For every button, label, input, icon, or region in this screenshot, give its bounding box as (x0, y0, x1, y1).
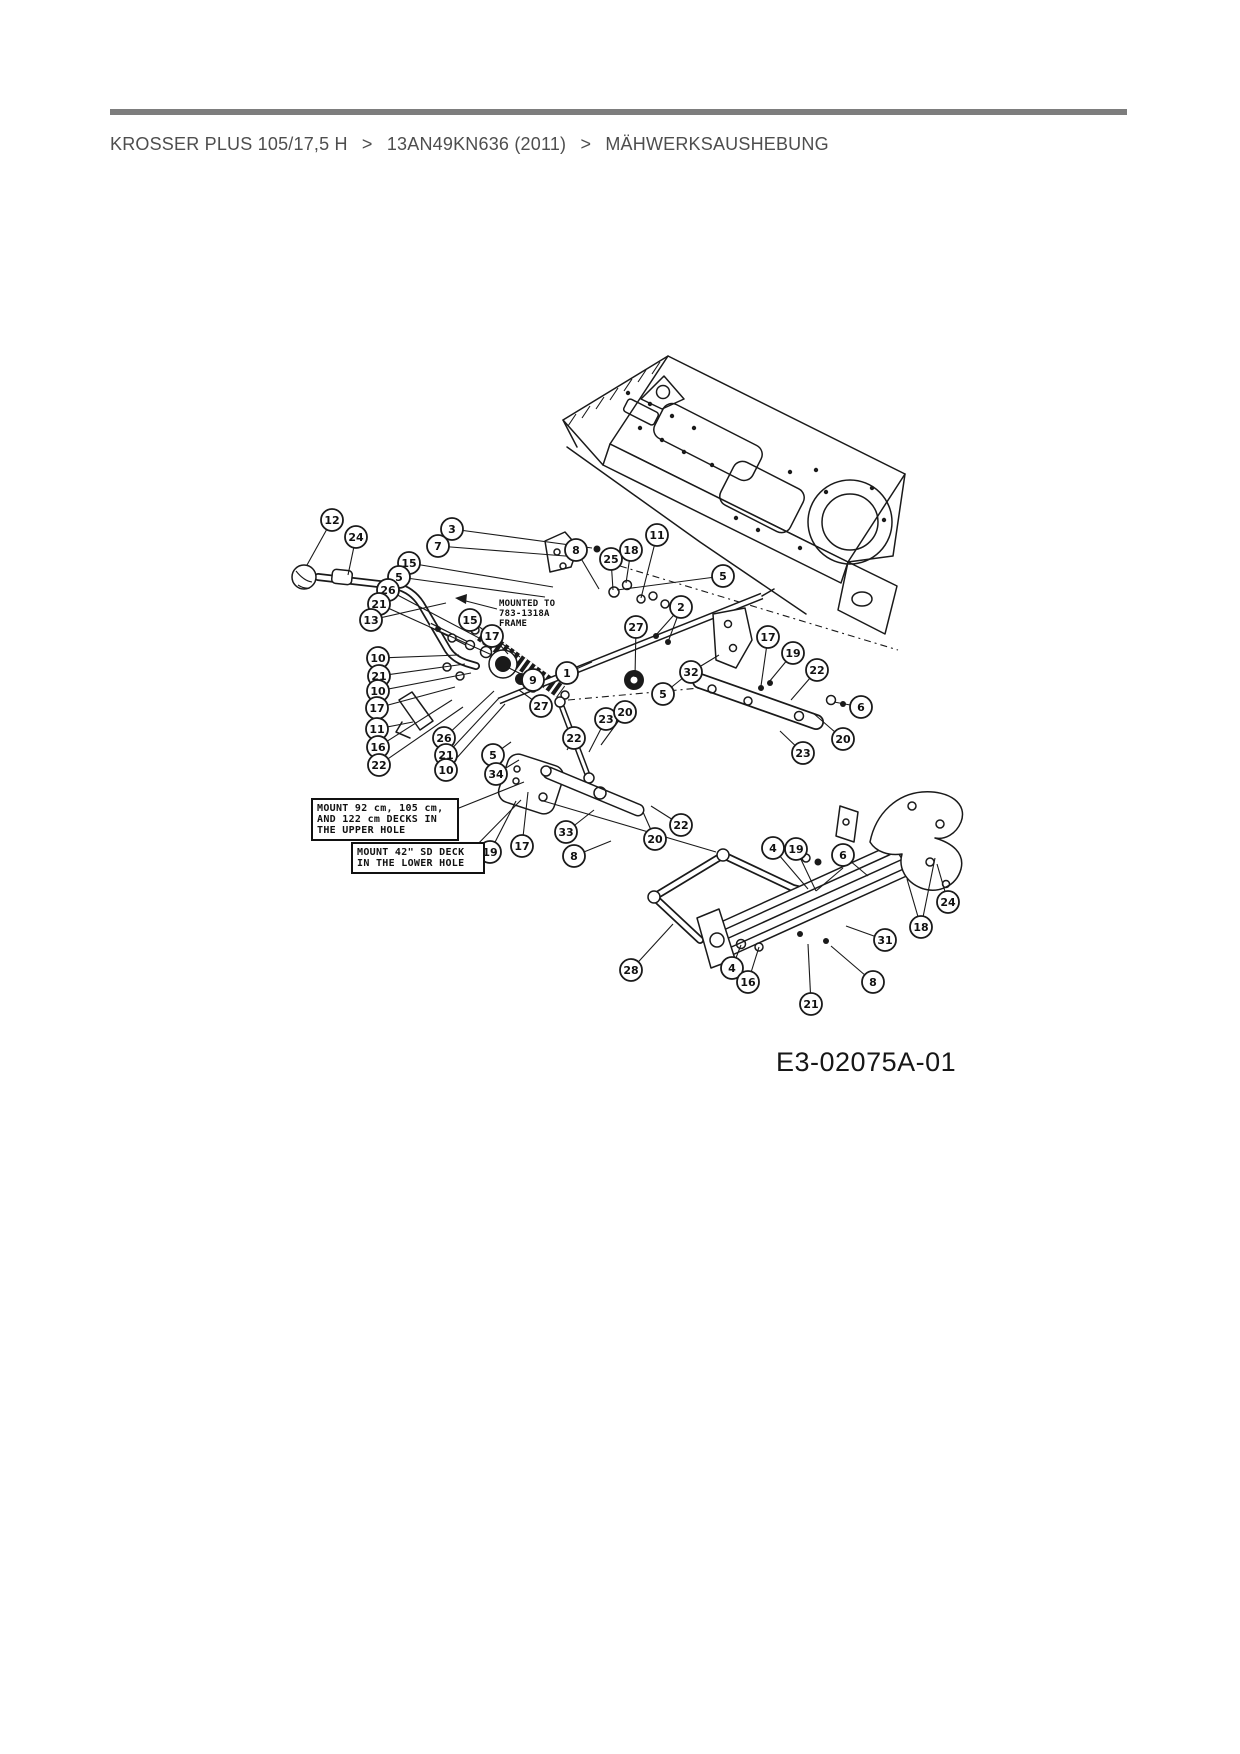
svg-text:15: 15 (462, 614, 477, 627)
svg-text:13: 13 (363, 614, 378, 627)
svg-text:1: 1 (563, 667, 571, 680)
part-balloon-23[interactable]: 23 (792, 742, 814, 764)
diagram-code-label: E3-02075A-01 (776, 1047, 956, 1078)
svg-text:23: 23 (598, 713, 613, 726)
svg-text:9: 9 (529, 674, 537, 687)
idler-pulley (624, 670, 644, 690)
part-balloon-19[interactable]: 19 (785, 838, 807, 860)
svg-text:6: 6 (839, 849, 847, 862)
svg-text:32: 32 (683, 666, 698, 679)
part-balloon-27[interactable]: 27 (530, 695, 552, 717)
part-balloon-32[interactable]: 32 (680, 661, 702, 683)
part-balloon-6[interactable]: 6 (832, 844, 854, 866)
svg-text:23: 23 (795, 747, 810, 760)
part-balloon-22[interactable]: 22 (806, 659, 828, 681)
part-balloon-11[interactable]: 11 (646, 524, 668, 546)
parts-diagram: 1224371552621131021101711162215179127262… (0, 0, 1240, 1754)
part-balloon-10[interactable]: 10 (435, 759, 457, 781)
part-balloon-24[interactable]: 24 (937, 891, 959, 913)
svg-text:2: 2 (677, 601, 685, 614)
part-balloon-19[interactable]: 19 (782, 642, 804, 664)
svg-text:17: 17 (760, 631, 775, 644)
part-balloon-34[interactable]: 34 (485, 763, 507, 785)
part-balloon-5[interactable]: 5 (712, 565, 734, 587)
part-balloon-2[interactable]: 2 (670, 596, 692, 618)
svg-text:33: 33 (558, 826, 573, 839)
part-balloon-4[interactable]: 4 (762, 837, 784, 859)
svg-text:18: 18 (913, 921, 928, 934)
svg-text:8: 8 (572, 544, 580, 557)
part-balloon-15[interactable]: 15 (459, 609, 481, 631)
svg-text:17: 17 (514, 840, 529, 853)
pivot-shaft-cluster (396, 625, 537, 738)
part-balloon-20[interactable]: 20 (832, 728, 854, 750)
part-balloon-21[interactable]: 21 (800, 993, 822, 1015)
svg-text:18: 18 (623, 544, 638, 557)
hanger-arm-right (700, 680, 846, 722)
part-balloon-24[interactable]: 24 (345, 526, 367, 548)
part-balloon-17[interactable]: 17 (511, 835, 533, 857)
svg-text:5: 5 (659, 688, 667, 701)
svg-text:28: 28 (623, 964, 638, 977)
svg-text:3: 3 (448, 523, 456, 536)
svg-text:20: 20 (647, 833, 663, 846)
svg-text:17: 17 (484, 630, 499, 643)
svg-text:4: 4 (769, 842, 777, 855)
part-balloon-16[interactable]: 16 (737, 971, 759, 993)
svg-text:7: 7 (434, 540, 442, 553)
part-balloon-22[interactable]: 22 (368, 754, 390, 776)
svg-text:24: 24 (940, 896, 956, 909)
bracket-32 (713, 608, 752, 668)
part-balloon-9[interactable]: 9 (522, 669, 544, 691)
svg-text:5: 5 (719, 570, 727, 583)
parts-catalog-page: KROSSER PLUS 105/17,5 H > 13AN49KN636 (2… (0, 0, 1240, 1754)
part-balloon-27[interactable]: 27 (625, 616, 647, 638)
svg-text:20: 20 (835, 733, 851, 746)
part-balloon-7[interactable]: 7 (427, 535, 449, 557)
svg-text:5: 5 (489, 749, 497, 762)
svg-text:10: 10 (370, 685, 386, 698)
note-lower-hole: MOUNT 42" SD DECK IN THE LOWER HOLE (351, 842, 485, 874)
part-balloon-20[interactable]: 20 (644, 828, 666, 850)
svg-text:12: 12 (324, 514, 339, 527)
svg-text:22: 22 (809, 664, 824, 677)
part-balloon-22[interactable]: 22 (563, 727, 585, 749)
svg-text:16: 16 (370, 741, 386, 754)
svg-text:6: 6 (857, 701, 865, 714)
part-balloon-18[interactable]: 18 (910, 916, 932, 938)
part-balloon-13[interactable]: 13 (360, 609, 382, 631)
part-balloon-12[interactable]: 12 (321, 509, 343, 531)
svg-text:11: 11 (369, 723, 384, 736)
part-balloon-18[interactable]: 18 (620, 539, 642, 561)
svg-text:22: 22 (673, 819, 688, 832)
part-balloon-17[interactable]: 17 (757, 626, 779, 648)
svg-text:27: 27 (628, 621, 643, 634)
svg-text:11: 11 (649, 529, 664, 542)
svg-text:16: 16 (740, 976, 756, 989)
svg-text:20: 20 (617, 706, 633, 719)
svg-text:24: 24 (348, 531, 364, 544)
part-balloon-6[interactable]: 6 (850, 696, 872, 718)
svg-text:4: 4 (728, 962, 736, 975)
note-mounted-to: MOUNTED TO 783-1318A FRAME (499, 599, 555, 629)
part-balloon-8[interactable]: 8 (563, 845, 585, 867)
part-balloon-20[interactable]: 20 (614, 701, 636, 723)
part-balloon-8[interactable]: 8 (862, 971, 884, 993)
svg-text:17: 17 (369, 702, 384, 715)
part-balloon-25[interactable]: 25 (600, 548, 622, 570)
part-balloon-5[interactable]: 5 (652, 683, 674, 705)
svg-text:21: 21 (803, 998, 818, 1011)
svg-text:22: 22 (566, 732, 581, 745)
svg-text:31: 31 (877, 934, 892, 947)
svg-text:19: 19 (788, 843, 803, 856)
part-balloon-17[interactable]: 17 (366, 697, 388, 719)
part-balloon-8[interactable]: 8 (565, 539, 587, 561)
note-upper-hole: MOUNT 92 cm, 105 cm, AND 122 cm DECKS IN… (311, 798, 459, 841)
svg-text:27: 27 (533, 700, 548, 713)
part-balloon-31[interactable]: 31 (874, 929, 896, 951)
svg-text:25: 25 (603, 553, 618, 566)
part-balloon-1[interactable]: 1 (556, 662, 578, 684)
svg-text:26: 26 (436, 732, 452, 745)
svg-text:10: 10 (370, 652, 386, 665)
part-balloon-33[interactable]: 33 (555, 821, 577, 843)
svg-text:34: 34 (488, 768, 504, 781)
pivot-plate (496, 751, 567, 816)
svg-text:8: 8 (869, 976, 877, 989)
svg-text:10: 10 (438, 764, 454, 777)
svg-text:19: 19 (785, 647, 800, 660)
part-balloon-22[interactable]: 22 (670, 814, 692, 836)
svg-text:22: 22 (371, 759, 386, 772)
svg-text:8: 8 (570, 850, 578, 863)
part-balloon-28[interactable]: 28 (620, 959, 642, 981)
